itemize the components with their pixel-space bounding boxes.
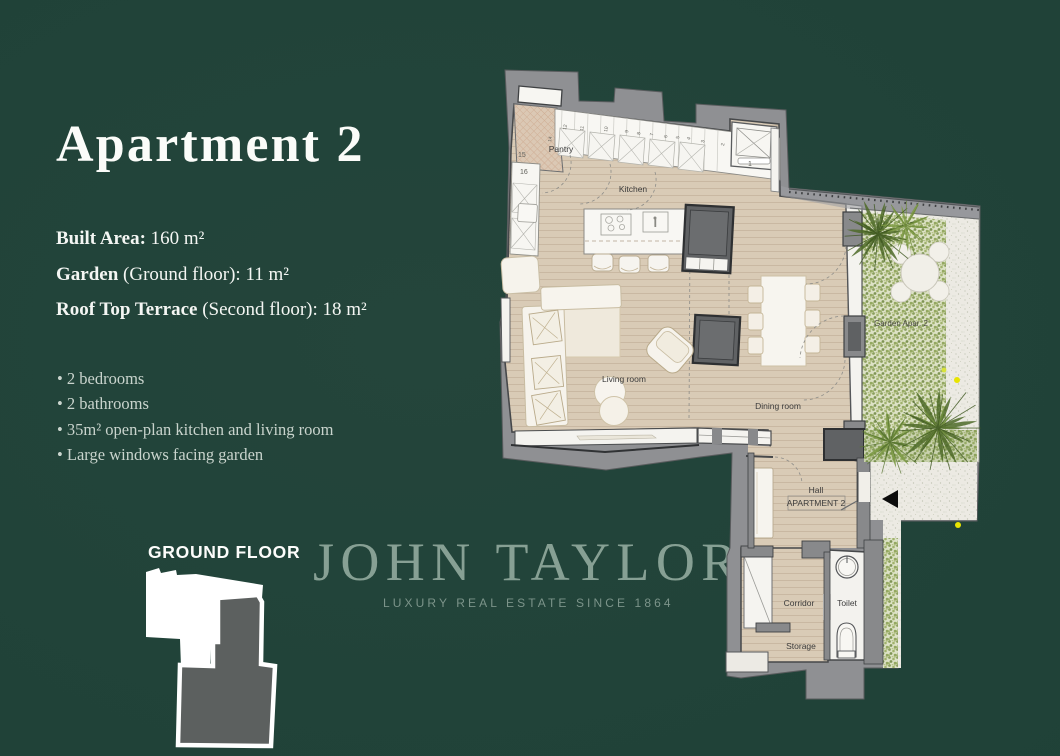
svg-text:Hall: Hall bbox=[809, 485, 824, 495]
svg-text:Dining room: Dining room bbox=[755, 401, 801, 411]
svg-text:16: 16 bbox=[520, 169, 528, 176]
svg-text:Storage: Storage bbox=[786, 641, 816, 651]
svg-text:Pantry: Pantry bbox=[549, 144, 574, 154]
svg-text:1: 1 bbox=[748, 161, 752, 168]
svg-text:Living room: Living room bbox=[602, 374, 646, 384]
svg-text:APARTMENT 2: APARTMENT 2 bbox=[787, 498, 846, 508]
svg-text:Toilet: Toilet bbox=[837, 598, 857, 608]
svg-text:Garden Apar. 2: Garden Apar. 2 bbox=[874, 319, 928, 328]
svg-text:Kitchen: Kitchen bbox=[619, 184, 648, 194]
svg-text:15: 15 bbox=[518, 152, 526, 159]
svg-text:Corridor: Corridor bbox=[784, 598, 815, 608]
